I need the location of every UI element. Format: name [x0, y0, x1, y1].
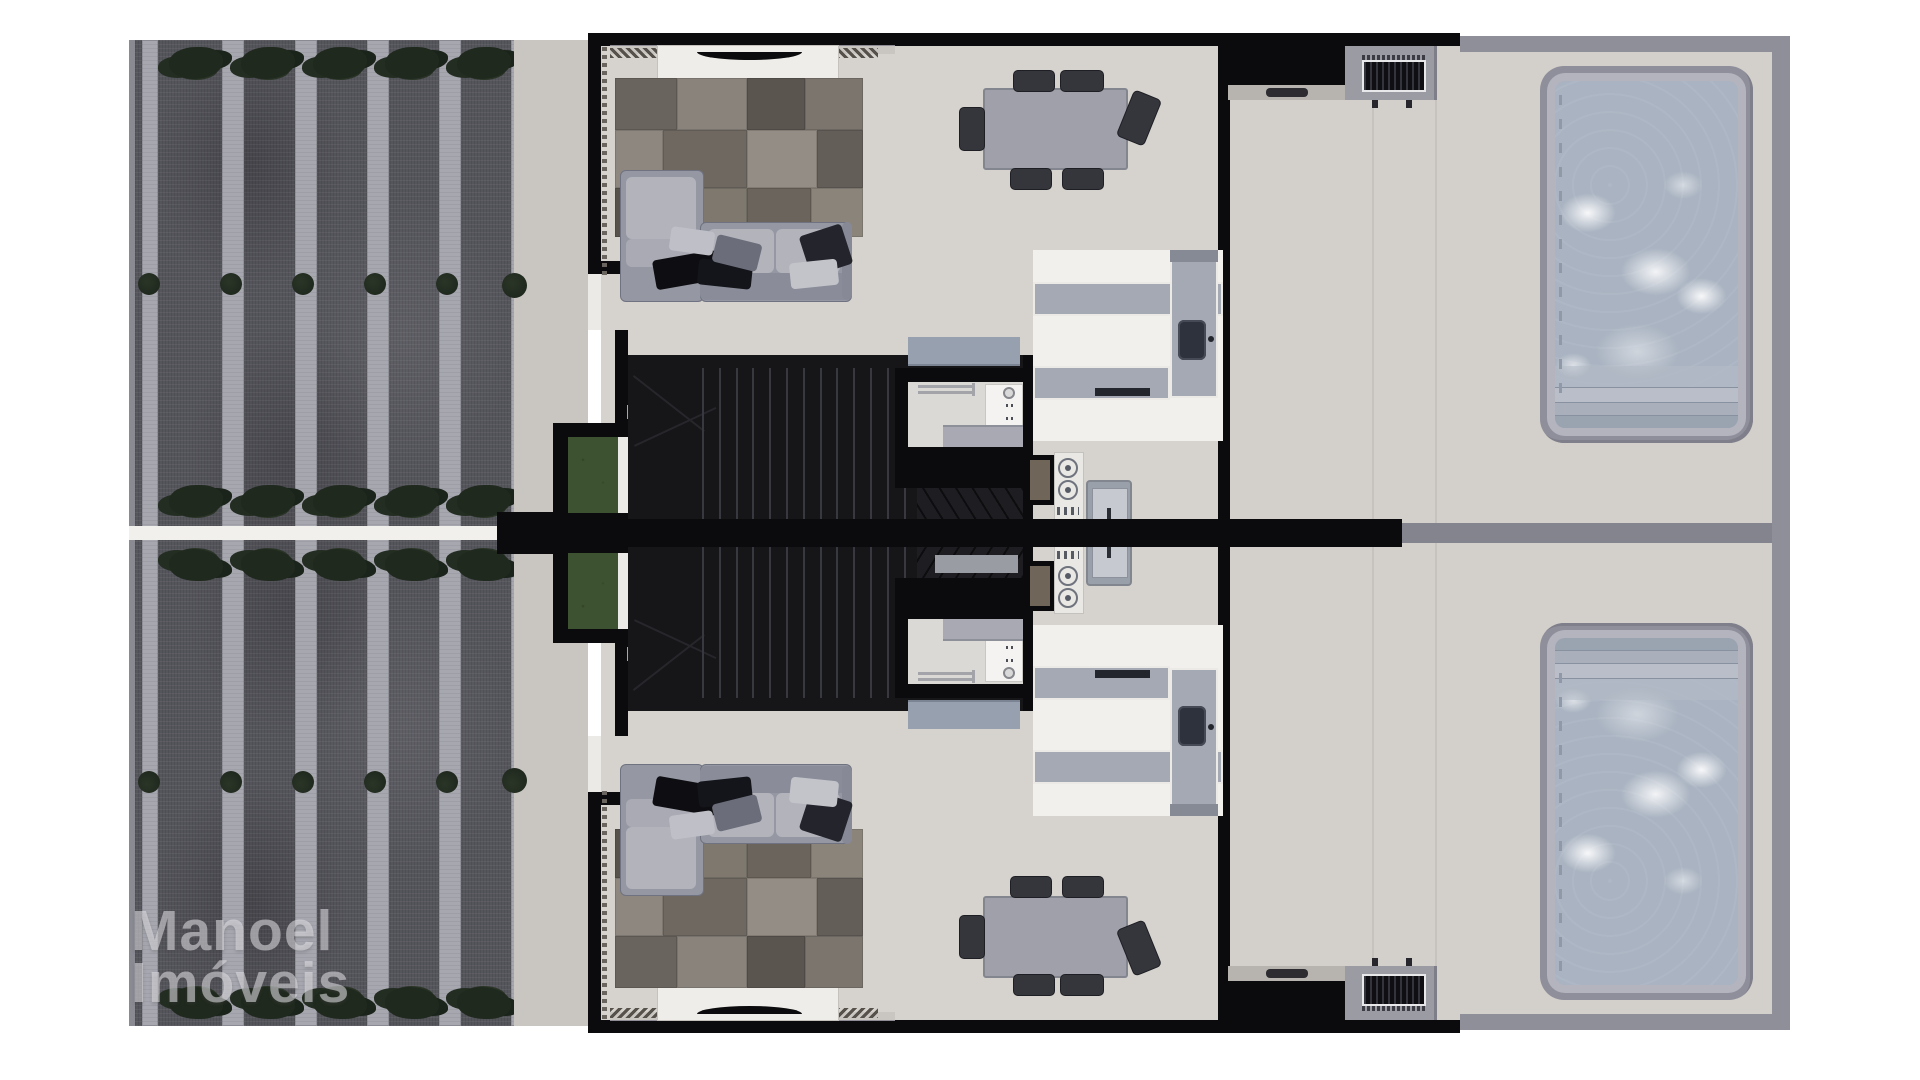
pool-edge-mark	[1559, 335, 1562, 345]
tree-icon	[313, 47, 367, 79]
burner-icon	[1058, 588, 1078, 608]
tv-console	[657, 45, 839, 80]
dining-chair	[1060, 974, 1104, 996]
rug-patch	[805, 78, 863, 130]
pool-edge-mark	[1559, 889, 1562, 899]
floor-plan-page: Manoel Imóveis	[0, 0, 1920, 1080]
pool-edge-mark	[1559, 841, 1562, 851]
tree-icon	[385, 987, 439, 1019]
tree-icon	[313, 485, 367, 517]
stove-dials-icon	[1057, 507, 1079, 515]
burner-icon	[1058, 480, 1078, 500]
tree-icon	[241, 485, 295, 517]
stair-tread	[870, 368, 872, 533]
rug-patch	[615, 936, 677, 988]
shower-rail-icon	[918, 385, 974, 388]
toilet-icon	[1006, 417, 1013, 420]
dining-chair	[1010, 168, 1052, 190]
pool-edge-mark	[1559, 937, 1562, 947]
dining-chair	[959, 915, 985, 959]
shower-rail-icon	[918, 678, 974, 681]
bathroom-vanity	[943, 619, 1023, 641]
kitchen-sink-icon	[1178, 706, 1206, 746]
ac-leg	[1372, 100, 1378, 108]
pool-step	[1555, 415, 1738, 428]
ac-leg	[1372, 958, 1378, 966]
stair-tread	[853, 368, 855, 533]
pool-step	[1555, 402, 1738, 415]
rug-patch	[747, 78, 805, 130]
kitchen-sink-icon	[1178, 320, 1206, 360]
shower-rail-icon	[918, 672, 974, 675]
tree-icon	[385, 47, 439, 79]
burner-icon	[1058, 566, 1078, 586]
tree-icon	[241, 549, 295, 581]
stair-tread	[803, 368, 805, 533]
yard-divider-wall	[1402, 533, 1772, 543]
pool-step	[1555, 664, 1738, 679]
dining-table	[983, 88, 1128, 170]
left-wall	[588, 33, 601, 274]
planter-garden	[568, 437, 618, 513]
pool-step	[1555, 638, 1738, 651]
stair-tread	[736, 368, 738, 533]
stair-tread	[752, 533, 754, 698]
rug-patch	[747, 936, 805, 988]
shrub-icon	[436, 771, 458, 793]
stair-tread	[719, 368, 721, 533]
pool-edge-mark	[1559, 263, 1562, 273]
shrub-icon	[364, 273, 386, 295]
cooktop-strip	[1095, 670, 1150, 678]
party-wall	[497, 519, 1402, 533]
pool-step	[1555, 651, 1738, 664]
pool-edge-mark	[1559, 143, 1562, 153]
tree-icon	[457, 987, 511, 1019]
cooktop-strip	[1095, 388, 1150, 396]
stair-tread	[786, 533, 788, 698]
counter-backsplash	[1170, 804, 1218, 816]
sideboard	[908, 337, 1020, 366]
stair-direction-line	[633, 634, 705, 691]
bathroom-vanity	[943, 425, 1023, 447]
pool-water	[1555, 81, 1738, 428]
dining-chair	[959, 107, 985, 151]
watermark: Manoel Imóveis	[131, 905, 350, 1010]
counter-backsplash	[1170, 250, 1218, 262]
shower-rail-icon	[918, 391, 974, 394]
unit-a-half	[110, 33, 1790, 533]
pillow-icon	[789, 777, 839, 808]
shrub-icon	[364, 771, 386, 793]
entry-door-threshold	[588, 736, 601, 792]
pool-edge-mark	[1559, 215, 1562, 225]
door-handle-icon	[1266, 969, 1308, 978]
pool-edge-mark	[1559, 865, 1562, 875]
pool-shelf	[1555, 678, 1738, 700]
pool-edge-mark	[1559, 95, 1562, 105]
burner-icon	[1058, 458, 1078, 478]
drain-icon	[1003, 667, 1015, 679]
curtain-icon	[836, 1008, 878, 1018]
dining-chair	[1060, 70, 1104, 92]
watermark-line2: Imóveis	[131, 957, 350, 1009]
pool-edge-mark	[1559, 697, 1562, 707]
rail-end-icon	[972, 383, 975, 396]
tree-icon	[169, 485, 223, 517]
pool-edge-mark	[1559, 793, 1562, 803]
rug-patch	[615, 78, 677, 130]
ac-grill-icon	[1362, 60, 1426, 92]
pool-edge-mark	[1559, 311, 1562, 321]
tree-icon	[313, 549, 367, 581]
oven-door	[1030, 566, 1050, 606]
pool-steps	[1555, 638, 1738, 678]
left-wall	[588, 792, 601, 1033]
tree-icon	[169, 47, 223, 79]
stair-tread	[769, 533, 771, 698]
pool-shelf	[1555, 366, 1738, 388]
tree-icon	[169, 549, 223, 581]
pool-step	[1555, 387, 1738, 402]
stair-tread	[870, 533, 872, 698]
ac-vent-icon	[1362, 1006, 1426, 1011]
pool-edge-mark	[1559, 745, 1562, 755]
curtain-icon	[610, 1008, 657, 1018]
planter-garden	[568, 553, 618, 629]
toilet-icon	[1006, 659, 1013, 662]
ac-grill-icon	[1362, 974, 1426, 1006]
rug-patch	[677, 936, 747, 988]
stair-tread	[702, 533, 704, 698]
stair-landing	[935, 555, 1018, 573]
yard-right-wall	[1772, 36, 1790, 533]
dining-chair	[1013, 70, 1055, 92]
shrub-icon	[138, 273, 160, 295]
stair-direction-line	[634, 407, 716, 447]
yard-right-wall	[1772, 533, 1790, 1030]
dining-chair	[1062, 876, 1104, 898]
drain-icon	[1003, 387, 1015, 399]
paving-joint	[1372, 100, 1374, 533]
sliding-door-recess	[1228, 981, 1348, 1033]
stair-tread	[786, 368, 788, 533]
duplex-floor-plan: Manoel Imóveis	[0, 0, 1920, 1080]
sliding-door-recess	[1228, 33, 1348, 85]
sideboard	[908, 700, 1020, 729]
pillow-icon	[789, 259, 839, 290]
stair-tread	[803, 533, 805, 698]
shrub-icon	[220, 771, 242, 793]
pool-steps	[1555, 388, 1738, 428]
toilet-icon	[1006, 646, 1013, 649]
dining-chair	[1013, 974, 1055, 996]
tv-console	[657, 986, 839, 1021]
stair-tread	[736, 533, 738, 698]
side-curtain-icon	[602, 791, 607, 1019]
paving-joint	[1435, 100, 1437, 533]
pool-edge-mark	[1559, 961, 1562, 971]
stair-tread	[719, 533, 721, 698]
shrub-icon	[138, 771, 160, 793]
shrub-icon	[220, 273, 242, 295]
rug-patch	[677, 78, 747, 130]
tree-icon	[385, 549, 439, 581]
yard-top-wall	[1460, 1014, 1772, 1030]
stair-tread	[820, 368, 822, 533]
tree-icon	[385, 485, 439, 517]
pool-edge-mark	[1559, 191, 1562, 201]
rug-patch	[817, 130, 863, 188]
stair-tread	[887, 533, 889, 698]
stove-dials-icon	[1057, 551, 1079, 559]
swimming-pool	[1540, 66, 1753, 443]
pool-edge-mark	[1559, 239, 1562, 249]
entry-walkway	[129, 533, 500, 540]
pool-edge-mark	[1559, 167, 1562, 177]
dining-chair	[1010, 876, 1052, 898]
pool-edge-mark	[1559, 817, 1562, 827]
ac-leg	[1406, 100, 1412, 108]
stair-tread	[836, 533, 838, 698]
yard-divider-wall	[1402, 523, 1772, 533]
curtain-icon	[836, 48, 878, 58]
faucet-icon	[1208, 724, 1214, 730]
entry-walkway	[129, 526, 500, 533]
curtain-icon	[610, 48, 657, 58]
oven-door	[1030, 460, 1050, 500]
rug-patch	[747, 878, 817, 936]
stair-direction-line	[634, 619, 716, 659]
pool-edge-mark	[1559, 721, 1562, 731]
stair-tread	[887, 368, 889, 533]
stair-tread	[752, 368, 754, 533]
stair-tread	[769, 368, 771, 533]
paving-joint	[1435, 533, 1437, 966]
ac-leg	[1406, 958, 1412, 966]
shrub-icon	[292, 273, 314, 295]
stair-tread	[702, 368, 704, 533]
pool-edge-mark	[1559, 119, 1562, 129]
dining-chair	[1062, 168, 1104, 190]
stair-tread	[820, 533, 822, 698]
pool-edge-mark	[1559, 913, 1562, 923]
party-wall	[497, 533, 1402, 547]
pool-edge-mark	[1559, 673, 1562, 683]
swimming-pool	[1540, 623, 1753, 1000]
pool-water	[1555, 638, 1738, 985]
pool-edge-mark	[1559, 769, 1562, 779]
stair-tread	[853, 533, 855, 698]
entry-door-threshold	[588, 274, 601, 330]
yard-top-wall	[1460, 36, 1772, 52]
stair-tread	[836, 368, 838, 533]
dining-table	[983, 896, 1128, 978]
driveway	[129, 40, 520, 533]
rug-patch	[805, 936, 863, 988]
watermark-line1: Manoel	[131, 905, 350, 957]
shrub-icon	[436, 273, 458, 295]
pool-edge-mark	[1559, 359, 1562, 369]
tree-icon	[457, 47, 511, 79]
shrub-icon	[502, 273, 527, 298]
rug-patch	[747, 130, 817, 188]
door-handle-icon	[1266, 88, 1308, 97]
toilet-icon	[1006, 404, 1013, 407]
shrub-icon	[292, 771, 314, 793]
stair-direction-line	[633, 375, 705, 432]
pool-edge-mark	[1559, 287, 1562, 297]
rail-end-icon	[972, 670, 975, 683]
rug-patch	[817, 878, 863, 936]
side-curtain-icon	[602, 47, 607, 275]
faucet-icon	[1208, 336, 1214, 342]
shrub-icon	[502, 768, 527, 793]
unit-b-half	[110, 533, 1790, 1033]
paving-joint	[1372, 533, 1374, 966]
tree-icon	[241, 47, 295, 79]
pool-edge-mark	[1559, 383, 1562, 393]
